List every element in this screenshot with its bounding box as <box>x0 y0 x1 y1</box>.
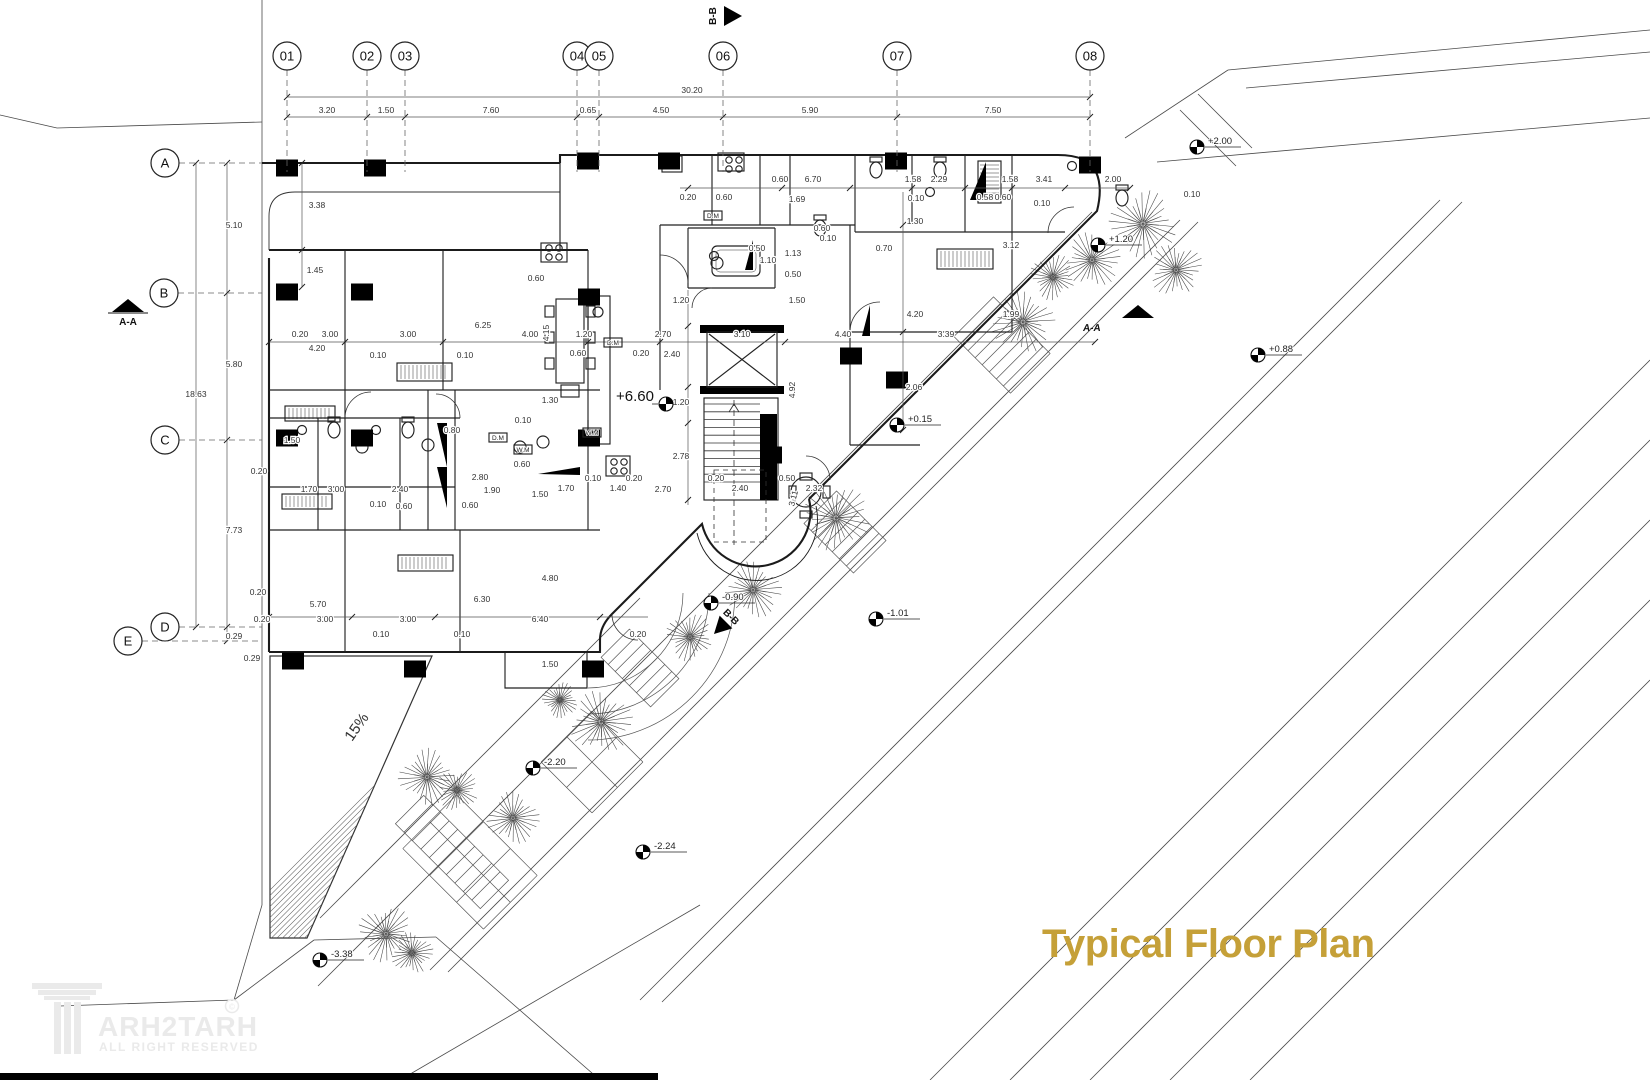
door-arc <box>806 456 830 480</box>
dim-label: 1.20 <box>673 295 690 305</box>
door-arc <box>1048 207 1074 233</box>
level-marker: -2.24 <box>636 841 687 859</box>
dim-label: 0.10 <box>373 629 390 639</box>
level-value: -0.90 <box>722 592 744 603</box>
dim-label: 0.20 <box>708 473 725 483</box>
watermark: ARH2TARH © ALL RIGHT RESERVED <box>32 983 259 1054</box>
column-icon <box>32 983 102 1054</box>
grid-bubble-col: 06 <box>709 42 737 70</box>
appliance-box <box>541 243 567 262</box>
section-marker-aa-left: A-A <box>108 299 148 328</box>
toilet-icon <box>402 417 414 438</box>
dim-label: 0.58 <box>977 192 994 202</box>
road-line <box>234 940 314 1000</box>
dim-label: 4.80 <box>542 573 559 583</box>
dim-label: 0.50 <box>785 269 802 279</box>
dim-label: 1.70 <box>558 483 575 493</box>
dim-label: 1.40 <box>610 483 627 493</box>
dim-label: 0.10 <box>1034 198 1051 208</box>
room-label: W.M <box>517 447 530 454</box>
grid-bubble-col: 08 <box>1076 42 1104 70</box>
sheet-edge-bar <box>0 1073 658 1080</box>
dim-label: 6.70 <box>805 174 822 184</box>
dim-label: 1.20 <box>673 397 690 407</box>
dim-segment-label: 5.90 <box>802 105 819 115</box>
dim-label: 0.10 <box>515 415 532 425</box>
dim-label: 2.40 <box>392 484 409 494</box>
tree <box>359 908 410 962</box>
grid-bubble-col: 05 <box>585 42 613 70</box>
room-label: D.M <box>492 435 504 442</box>
ramp-slope-label: 15% <box>341 710 372 744</box>
grid-bubble-label: 03 <box>398 49 412 64</box>
dim-label: 1.58 <box>1002 174 1019 184</box>
dim-segment-label: 1.50 <box>378 105 395 115</box>
grid-bubble-label: 01 <box>280 49 294 64</box>
grid-bubble-label: D <box>160 620 169 635</box>
chair <box>823 486 830 498</box>
dim-label: 2.00 <box>1105 174 1122 184</box>
building-walls <box>262 155 1100 688</box>
road-line <box>57 122 262 128</box>
dim-label: 0.10 <box>908 193 925 203</box>
road-line <box>930 360 1650 1080</box>
dim-label: 0.10 <box>585 473 602 483</box>
level-value: -2.24 <box>654 841 676 852</box>
tree <box>487 791 540 843</box>
section-label-bb-top: B-B <box>708 7 719 25</box>
dim-label: 2.40 <box>732 483 749 493</box>
road-line <box>640 200 1440 1000</box>
dim-label: 1.69 <box>789 194 806 204</box>
dim-segment-label: 5.10 <box>226 220 243 230</box>
toilet-icon <box>870 157 882 178</box>
dim-label: 2.70 <box>655 329 672 339</box>
watermark-copyright: © <box>229 1003 235 1012</box>
dim-label: 4.15 <box>541 324 551 341</box>
level-value: +2.00 <box>1208 136 1232 147</box>
column <box>577 153 599 170</box>
door-arc <box>692 288 712 308</box>
chair <box>545 358 554 369</box>
dim-label: 0.60 <box>772 174 789 184</box>
ramp-outline <box>270 656 432 938</box>
column <box>578 289 600 306</box>
dim-label: 6.30 <box>474 594 491 604</box>
dim-label: 1.20 <box>576 329 593 339</box>
door-arc <box>660 255 688 283</box>
dim-label: 1.50 <box>284 435 301 445</box>
watermark-brand: ARH2TARH <box>98 1011 258 1042</box>
road-line <box>1125 70 1228 138</box>
dim-label: 5.70 <box>310 599 327 609</box>
tree <box>438 773 477 810</box>
dim-label: 0.60 <box>396 501 413 511</box>
grid-bubble-label: C <box>160 433 169 448</box>
road-line <box>1246 52 1650 88</box>
dim-label: 0.60 <box>716 192 733 202</box>
ramp-hatch-lines <box>0 600 1215 1080</box>
dim-label: 0.20 <box>250 587 267 597</box>
dim-label: 1.99 <box>1003 309 1020 319</box>
grid-bubble-label: B <box>160 286 169 301</box>
dim-label: 2.06 <box>906 382 923 392</box>
sink-icon <box>710 252 719 261</box>
dim-segment-label: 5.80 <box>226 359 243 369</box>
tree <box>667 615 711 661</box>
dim-label: 0.60 <box>814 223 831 233</box>
dim-segment-label: 7.60 <box>483 105 500 115</box>
level-marker: -3.38 <box>313 949 364 967</box>
dim-segment-label: 4.50 <box>653 105 670 115</box>
dim-label: 0.10 <box>370 499 387 509</box>
level-marker: +0.88 <box>1251 344 1302 362</box>
dim-label: 3.39 <box>938 329 955 339</box>
chair <box>545 306 554 317</box>
level-value: -2.20 <box>544 757 566 768</box>
door-arc <box>345 392 371 418</box>
dim-label: 3.12 <box>1003 240 1020 250</box>
level-marker: -1.01 <box>869 608 920 626</box>
column <box>351 284 373 301</box>
tree <box>392 932 433 972</box>
dim-label: 4.92 <box>787 381 797 398</box>
radiator <box>937 249 993 269</box>
page-title: Typical Floor Plan <box>1042 922 1375 966</box>
door-tag <box>537 436 549 448</box>
dim-label: 0.70 <box>876 243 893 253</box>
stair-elevator-core <box>700 325 784 545</box>
dim-label: 0.20 <box>251 466 268 476</box>
dim-label: 1.70 <box>301 484 318 494</box>
dim-label: 1.10 <box>760 255 777 265</box>
column <box>351 430 373 447</box>
room-label: W.M <box>586 430 599 437</box>
dim-label: 3.00 <box>322 329 339 339</box>
dim-label: 4.00 <box>522 329 539 339</box>
dim-label: 2.70 <box>655 484 672 494</box>
radiator <box>282 494 332 509</box>
dim-label: 0.60 <box>514 459 531 469</box>
section-marker-bb-road: B-B <box>708 607 741 640</box>
trees-layer <box>359 190 1202 972</box>
door-arc <box>436 394 460 418</box>
road-line <box>234 905 262 1000</box>
dim-segment-label: 3.20 <box>319 105 336 115</box>
floor-plan-canvas: 30.203.201.507.600.654.505.907.5018.635.… <box>0 0 1650 1080</box>
column <box>886 372 908 389</box>
road-line <box>320 598 640 918</box>
dim-segment-label: 7.73 <box>226 525 243 535</box>
grid-bubble-row: D <box>151 613 179 641</box>
grid-bubble-row: C <box>151 426 179 454</box>
section-label-aa-right: A-A <box>1082 323 1101 334</box>
sink-icon <box>298 426 307 435</box>
dim-segment-label: 0.29 <box>226 631 243 641</box>
dim-label: 6.40 <box>532 614 549 624</box>
road-line <box>60 1000 234 1006</box>
level-value: +1.20 <box>1109 234 1133 245</box>
column <box>282 653 304 670</box>
dim-label: 1.30 <box>907 216 924 226</box>
section-label-aa-left: A-A <box>119 317 137 328</box>
radiator <box>398 555 453 571</box>
dim-label: 3.00 <box>400 329 417 339</box>
dim-label: 0.10 <box>457 350 474 360</box>
outer-wall-top <box>262 155 1100 499</box>
level-value: +6.60 <box>616 388 654 405</box>
dim-label: 0.20 <box>254 614 271 624</box>
dim-label: 1.58 <box>905 174 922 184</box>
stove-burners <box>726 157 742 172</box>
dim-segment-label: 7.50 <box>985 105 1002 115</box>
dining-table <box>556 299 584 383</box>
site-roads <box>0 0 1650 1080</box>
dim-label: 0.20 <box>292 329 309 339</box>
dim-label: 0.60 <box>570 348 587 358</box>
dim-label: 0.10 <box>454 629 471 639</box>
grid-bubble-label: 05 <box>592 49 606 64</box>
level-value: +0.15 <box>908 414 932 425</box>
grid-bubble-label: 06 <box>716 49 730 64</box>
tree <box>1109 190 1176 258</box>
dim-label: 1.90 <box>484 485 501 495</box>
road-line <box>1090 520 1650 1080</box>
section-marker-aa-right: A-A <box>1082 305 1154 334</box>
column <box>840 348 862 365</box>
dim-label: 2.40 <box>664 349 681 359</box>
grid-bubble-label: 02 <box>360 49 374 64</box>
dim-label: 1.50 <box>542 659 559 669</box>
grid-bubble-col: 01 <box>273 42 301 70</box>
dim-label: 1.45 <box>307 265 324 275</box>
dim-label: 4.40 <box>835 329 852 339</box>
tree <box>805 490 869 551</box>
level-value: -1.01 <box>887 608 909 619</box>
floor-plan-sheet: 30.203.201.507.600.654.505.907.5018.635.… <box>0 0 1650 1080</box>
road-line <box>400 905 700 1080</box>
road-line <box>0 115 57 128</box>
toilet-icon <box>328 417 340 438</box>
dim-label: 4.20 <box>907 309 924 319</box>
radiator <box>397 363 452 381</box>
grid-bubble-label: A <box>161 156 170 171</box>
road-line <box>1250 680 1650 1080</box>
dim-label: 0.10 <box>1184 189 1201 199</box>
grid-bubble-row: E <box>114 627 142 655</box>
dim-label: 0.10 <box>370 350 387 360</box>
dim-label: 1.30 <box>542 395 559 405</box>
grid-bubble-row: A <box>151 149 179 177</box>
dim-label: 3.00 <box>328 484 345 494</box>
dim-label: 3.00 <box>317 614 334 624</box>
dim-label: 1.13 <box>785 248 802 258</box>
dim-segment-label: 0.65 <box>580 105 597 115</box>
grid-bubble-label: E <box>124 634 133 649</box>
solid-wedge <box>538 467 580 475</box>
grid-bubble-label: 07 <box>890 49 904 64</box>
road-line <box>436 937 600 1080</box>
dim-label: 0.29 <box>244 653 261 663</box>
room-label: D.M <box>607 340 619 347</box>
entry-porch <box>505 652 587 688</box>
road-line <box>1228 30 1650 70</box>
dim-label: 0.60 <box>528 273 545 283</box>
tree <box>572 691 633 750</box>
level-value: -3.38 <box>331 949 353 960</box>
dim-label: 0.20 <box>680 192 697 202</box>
dim-total-label: 18.63 <box>185 389 207 399</box>
walkway-arc <box>588 593 709 714</box>
dim-label: 0.10 <box>820 233 837 243</box>
level-marker: +6.60 <box>616 388 673 411</box>
grid-bubble-col: 02 <box>353 42 381 70</box>
dim-label: 0.60 <box>995 192 1012 202</box>
column <box>582 661 604 678</box>
dim-label: 3.41 <box>1036 174 1053 184</box>
grid-bubble-label: 08 <box>1083 49 1097 64</box>
tree <box>1153 245 1202 293</box>
dim-label: 0.50 <box>779 473 796 483</box>
dim-label: 0.20 <box>633 348 650 358</box>
tree <box>1030 255 1073 300</box>
dim-label: 1.50 <box>532 489 549 499</box>
dim-total-label: 30.20 <box>681 85 703 95</box>
section-marker-bb-top: B-B <box>708 6 742 26</box>
column <box>658 153 680 170</box>
grid-bubble-label: 04 <box>570 49 584 64</box>
road-line <box>1170 600 1650 1080</box>
road-line <box>448 222 1198 972</box>
stove-burners <box>611 459 627 474</box>
dim-label: 0.20 <box>630 629 647 639</box>
column <box>760 447 782 464</box>
dim-label: 3.10 <box>734 329 751 339</box>
grid-bubble-col: 03 <box>391 42 419 70</box>
dim-label: 4.20 <box>309 343 326 353</box>
level-marker: +0.15 <box>890 414 941 432</box>
dim-label: 0.80 <box>444 425 461 435</box>
dim-label: 1.50 <box>789 295 806 305</box>
level-value: +0.88 <box>1269 344 1293 355</box>
dim-label: 2.80 <box>472 472 489 482</box>
dim-label: 2.32 <box>806 483 823 493</box>
watermark-subtitle: ALL RIGHT RESERVED <box>99 1040 259 1054</box>
solid-wedge <box>862 305 870 336</box>
dim-label: 3.00 <box>400 614 417 624</box>
dim-label: 3.38 <box>309 200 326 210</box>
chair <box>586 358 595 369</box>
chair <box>561 385 579 397</box>
room-label: D.M <box>707 213 719 220</box>
sink-icon <box>926 188 935 197</box>
dim-label: 6.25 <box>475 320 492 330</box>
column <box>276 284 298 301</box>
grid-bubble-row: B <box>150 279 178 307</box>
grid-bubble-col: 07 <box>883 42 911 70</box>
dim-label: 2.29 <box>931 174 948 184</box>
column <box>404 661 426 678</box>
dim-label: 2.78 <box>673 451 690 461</box>
dim-label: 0.60 <box>462 500 479 510</box>
road-line <box>1010 440 1650 1080</box>
dim-label: 0.20 <box>626 473 643 483</box>
ramp-hatch <box>0 600 1215 1080</box>
kitchen-counter <box>588 296 610 444</box>
level-marker: +2.00 <box>1190 136 1241 154</box>
dim-label: 0.50 <box>749 243 766 253</box>
road-line <box>662 202 1462 1002</box>
sink-icon <box>1068 162 1077 171</box>
steps-band <box>601 629 679 707</box>
column <box>885 153 907 170</box>
